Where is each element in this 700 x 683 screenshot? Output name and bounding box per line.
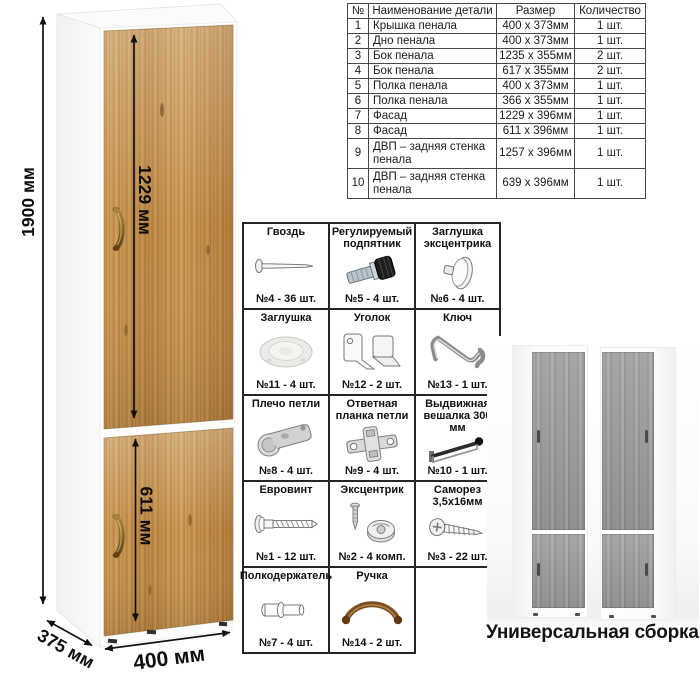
hinge-arm-icon (254, 410, 318, 465)
parts-table-header: № Наименование детали Размер Количество (348, 4, 646, 19)
table-row: 6Полка пенала366 х 355мм1 шт. (348, 94, 646, 109)
hardware-cell-handle: Ручка №14 - 2 шт. (329, 567, 415, 653)
handle-icon (339, 582, 405, 637)
hardware-cell-shelf-pin: Полкодержатель №7 - 4 шт. (243, 567, 329, 653)
table-row: 3Бок пенала1235 х 355мм2 шт. (348, 49, 646, 64)
hex-key-icon (428, 324, 488, 379)
table-row: 4Бок пенала617 х 355мм2 шт. (348, 64, 646, 79)
door-handle-icon (537, 430, 540, 443)
self-tapping-screw-icon (428, 508, 488, 551)
col-name: Наименование детали (369, 4, 497, 19)
table-row: 10ДВП – задняя стенка пенала639 х 396мм1… (348, 169, 646, 199)
hardware-cell-adjustable-foot: Регулируемый подпятник №5 - 4 шт. (329, 223, 415, 309)
dim-upper-door-label: 1229 мм (135, 165, 155, 235)
door-handle-icon (645, 563, 648, 576)
dim-lower-door-label: 611 мм (137, 487, 157, 546)
cabinet-foot (609, 615, 614, 618)
hardware-grid: Гвоздь №4 - 36 шт. Регулируемый подпятни… (242, 222, 501, 654)
table-row: 5Полка пенала400 х 373мм1 шт. (348, 79, 646, 94)
table-row: 2Дно пенала400 х 373мм1 шт. (348, 34, 646, 49)
cabinet-foot (575, 613, 580, 616)
hardware-cell-cam-lock: Эксцентрик №2 - 4 комп. (329, 481, 415, 567)
door-handle-icon (537, 563, 540, 576)
hardware-cell-euro-screw: Евровинт №1 - 12 шт. (243, 481, 329, 567)
assembled-cabinet-left (512, 345, 588, 618)
cabinet-dimension-drawing: 1900 мм 1229 мм 611 мм 375 мм 400 мм (0, 0, 250, 683)
table-row: 9ДВП – задняя стенка пенала1257 х 396мм1… (348, 139, 646, 169)
hardware-cell-corner-bracket: Уголок №12 - 2 шт. (329, 309, 415, 395)
corner-bracket-icon (340, 324, 404, 379)
shelf-pin-icon (258, 582, 314, 637)
cap-icon (257, 324, 315, 379)
cabinet-foot (533, 613, 538, 616)
door-handle-icon (645, 430, 648, 443)
table-row: 8Фасад611 х 396мм1 шт. (348, 124, 646, 139)
col-qty: Количество (575, 4, 646, 19)
parts-table: № Наименование детали Размер Количество … (347, 3, 646, 199)
hardware-cell-hinge-plate: Ответная планка петли №9 - 4 шт. (329, 395, 415, 481)
euro-screw-icon (253, 496, 319, 551)
assembly-instruction-sheet: { "cabinet_diagram": { "dims": { "height… (0, 0, 700, 683)
hardware-cell-nail: Гвоздь №4 - 36 шт. (243, 223, 329, 309)
assembly-caption: Универсальная сборка. (486, 622, 700, 644)
hardware-cell-cam-cover: Заглушка эксцентрика №6 - 4 шт. (415, 223, 500, 309)
cabinet-foot (651, 615, 656, 618)
dim-width-label: 400 мм (132, 642, 206, 674)
dim-height-label: 1900 мм (18, 167, 38, 237)
table-row: 7Фасад1229 х 396мм1 шт. (348, 109, 646, 124)
adjustable-foot-icon (343, 250, 401, 293)
hardware-cell-cap: Заглушка №11 - 4 шт. (243, 309, 329, 395)
nail-icon (254, 238, 318, 293)
hardware-cell-hinge-arm: Плечо петли №8 - 4 шт. (243, 395, 329, 481)
cam-cover-icon (435, 250, 481, 293)
col-size: Размер (497, 4, 575, 19)
pullout-hanger-icon (427, 434, 489, 465)
hinge-plate-icon (343, 422, 401, 465)
cam-lock-icon (343, 496, 401, 551)
table-row: 1Крышка пенала400 х 373мм1 шт. (348, 19, 646, 34)
col-num: № (348, 4, 369, 19)
assembled-cabinet-right (600, 347, 676, 620)
